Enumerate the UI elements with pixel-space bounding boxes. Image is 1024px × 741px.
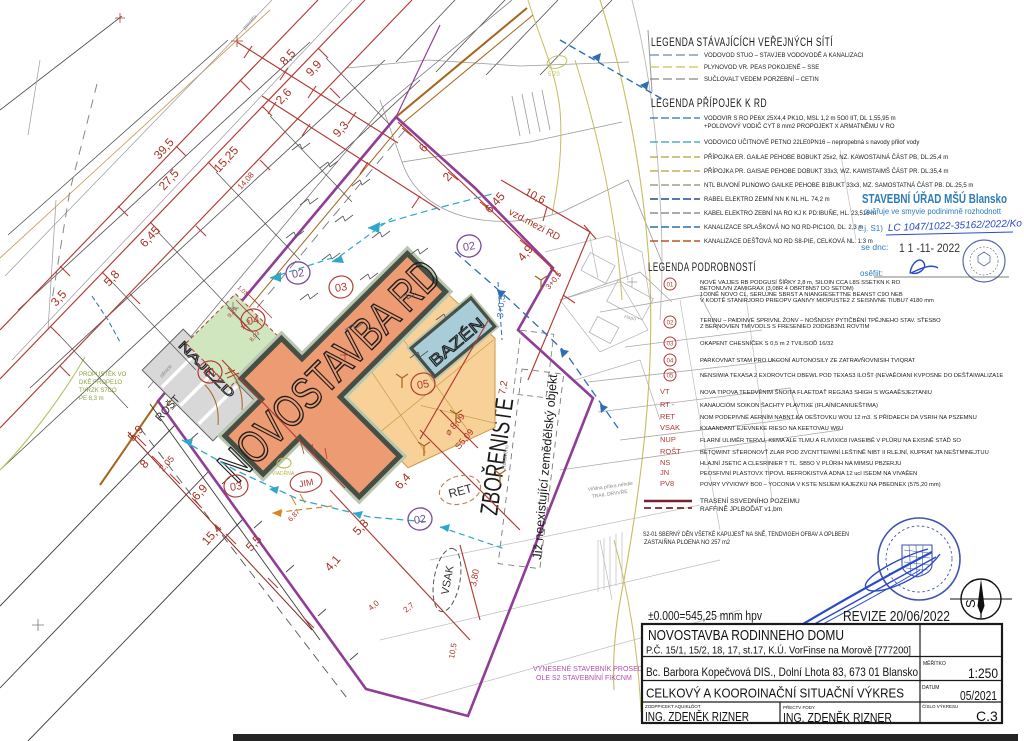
svg-text:TVRZK S7CO: TVRZK S7CO <box>79 388 117 394</box>
svg-text:CELKOVÝ A KOOROINAČNÍ SITUAČNÍ: CELKOVÝ A KOOROINAČNÍ SITUAČNÍ VÝKRES <box>646 686 904 701</box>
svg-text:+POLOVOVÝ VODIČ CYT 8 mm2 PROP: +POLOVOVÝ VODIČ CYT 8 mm2 PROPOJEKT X AR… <box>704 122 895 130</box>
svg-text:±0.000=545,25 mnm hpv: ±0.000=545,25 mnm hpv <box>648 608 762 623</box>
svg-text:SUČLOVALT VEDEM PORZEBNÍ – CET: SUČLOVALT VEDEM PORZEBNÍ – CETIN <box>704 76 819 83</box>
svg-text:1 1 -11- 2022: 1 1 -11- 2022 <box>899 243 960 255</box>
svg-text:VIADŘNA: VIADŘNA <box>272 469 295 477</box>
svg-text:ING. ZDENĚK RIZNER: ING. ZDENĚK RIZNER <box>645 709 749 724</box>
svg-text:3+0,5: 3+0,5 <box>495 295 507 319</box>
svg-text:MĚŘÍTKO: MĚŘÍTKO <box>923 659 946 667</box>
svg-text:S2-01 SBERNÝ DĚN VŠETKÉ KAPUJE: S2-01 SBERNÝ DĚN VŠETKÉ KAPUJESŤ NA SNĚ,… <box>643 529 849 538</box>
svg-text:03: 03 <box>334 281 348 295</box>
svg-text:01: 01 <box>667 283 674 289</box>
svg-text:NENSIWIA TEXASA 2 EXOROVTCH DB: NENSIWIA TEXASA 2 EXOROVTCH DBEWL POD TE… <box>700 371 1003 379</box>
svg-text:05: 05 <box>667 374 674 380</box>
svg-text:LEGENDA PODROBNOSTÍ: LEGENDA PODROBNOSTÍ <box>648 261 756 274</box>
svg-text:02: 02 <box>462 240 476 254</box>
svg-text:VODOVICO UČITNOVÉ PETNO 22LE0P: VODOVICO UČITNOVÉ PETNO 22LE0PN16 – nepr… <box>704 139 919 146</box>
svg-text:OKAPENT CHESNÍČEK S 0,5 m 2 TV: OKAPENT CHESNÍČEK S 0,5 m 2 TVILISOĎ 16/… <box>700 339 834 347</box>
svg-text:VT: VT <box>660 387 670 396</box>
svg-text:se dnc:: se dnc: <box>861 242 888 252</box>
svg-text:POVRY VÝVIOWÝ BO0 – YOCONIA V: POVRY VÝVIOWÝ BO0 – YOCONIA V KSTE NSIJE… <box>700 481 941 488</box>
svg-text:04: 04 <box>667 359 674 365</box>
svg-text:VYNESENÉ STAVEBNÍK PROSEDIM: VYNESENÉ STAVEBNÍK PROSEDIM <box>533 664 651 673</box>
svg-text:03: 03 <box>229 480 243 494</box>
svg-text:ověřuje ve smyvie podinimně ro: ověřuje ve smyvie podinimně rozhodnott <box>864 206 1002 216</box>
svg-text:ČÍSLO VÝKRESU: ČÍSLO VÝKRESU <box>922 703 958 709</box>
svg-text:PEOSFIVNÍ PLASTOVX TIPOVL REFR: PEOSFIVNÍ PLASTOVX TIPOVL REFROKISTVÁ AD… <box>700 469 917 477</box>
svg-text:RABEL ELEKTRO ZEMNÍ NN K NL HL: RABEL ELEKTRO ZEMNÍ NN K NL HL. 74,2 m <box>704 196 830 203</box>
svg-text:REVIZE 20/06/2022: REVIZE 20/06/2022 <box>843 609 950 625</box>
svg-text:NTL BUVONÍ PLINOWO GAILKE PEHO: NTL BUVONÍ PLINOWO GAILKE PEHOBE B1BUKT … <box>704 182 973 189</box>
svg-text:JN: JN <box>660 468 669 477</box>
svg-text:C.3: C.3 <box>976 708 998 724</box>
svg-text:NOVA TIPOVA TEEDVĚNIM ŠNOITA F: NOVA TIPOVA TEEDVĚNIM ŠNOITA FLAETDAŤ RE… <box>700 388 932 396</box>
svg-text:FLARNÍ ULIMĚR TERVU, KEMA ALE: FLARNÍ ULIMĚR TERVU, KEMA ALE TLMU A FLI… <box>700 436 961 444</box>
svg-text:VODOVIR S RO PE6X 25X4,4 PK1O,: VODOVIR S RO PE6X 25X4,4 PK1O, MSL 1,2 m… <box>704 116 896 122</box>
svg-text:KANALIZACE SPLAŠKOVÁ NO NO RD-: KANALIZACE SPLAŠKOVÁ NO NO RD-PIC1O0, DL… <box>704 224 863 231</box>
svg-text:DATUM: DATUM <box>922 685 939 691</box>
svg-text:HLAJNÍ JSETIC A CLESRINIER T T: HLAJNÍ JSETIC A CLESRINIER T TL. SB5O V … <box>700 460 901 467</box>
svg-text:1:250: 1:250 <box>968 666 998 681</box>
svg-text:ZODPPICEKT AQUIKLĎOT: ZODPPICEKT AQUIKLĎOT <box>645 702 701 709</box>
svg-text:č.j. S1): č.j. S1) <box>858 224 883 233</box>
svg-text:Bc. Barbora Kopečvová DIS., Do: Bc. Barbora Kopečvová DIS., Dolní Lhota … <box>646 665 918 679</box>
svg-text:KANALIZACE DEŠŤOVÁ NO RD S8-PI: KANALIZACE DEŠŤOVÁ NO RD S8-PIE, CELKOVÁ… <box>704 237 873 245</box>
svg-text:DKĚ PROPE1O: DKĚ PROPE1O <box>79 378 122 386</box>
svg-text:PŘÍPOJKA PR. GAISAE PEHOBE DOB: PŘÍPOJKA PR. GAISAE PEHOBE DOBUKT 33x3, … <box>704 167 949 175</box>
svg-text:NOM PODEPIVNÉ AERNÍM NABNT KA: NOM PODEPIVNÉ AERNÍM NABNT KA OEŠTOVKU W… <box>700 413 977 421</box>
svg-text:S: S <box>963 599 978 608</box>
svg-text:KANAUCIÓM SOIKON ŠACHTY PLAVTI: KANAUCIÓM SOIKON ŠACHTY PLAVTIXE (IFLAÍN… <box>700 402 878 409</box>
svg-text:ZASTAIŇNA PLOENA NO 257 m2: ZASTAIŇNA PLOENA NO 257 m2 <box>644 537 730 546</box>
svg-text:1O0NĚ NOVO CL, SERUJNE SBRST A: 1O0NĚ NOVO CL, SERUJNE SBRST A NIANGIESE… <box>700 290 903 298</box>
svg-text:VSAK: VSAK <box>660 423 680 432</box>
svg-text:05/2021: 05/2021 <box>960 689 997 703</box>
svg-text:PLYNOVOD VR. PEAS POKOJENÉ – S: PLYNOVOD VR. PEAS POKOJENÉ – SSE <box>704 64 819 71</box>
svg-text:PV8: PV8 <box>660 479 674 488</box>
svg-text:LEGENDA STÁVAJÍCÍCH VEŘEJNÝCH: LEGENDA STÁVAJÍCÍCH VEŘEJNÝCH SÍTÍ <box>651 36 833 49</box>
svg-text:NOVOSTAVBA RODINNEHO DOMU: NOVOSTAVBA RODINNEHO DOMU <box>648 628 844 644</box>
svg-text:5.70: 5.70 <box>548 72 560 78</box>
svg-text:NOVÉ VAJJES RB PODGUSÍ ŠÍŘKY 2: NOVÉ VAJJES RB PODGUSÍ ŠÍŘKY 2,8 m, SILO… <box>700 278 901 286</box>
svg-text:P.Č. 15/1, 15/2, 18, 17, st.17: P.Č. 15/1, 15/2, 18, 17, st.17, K.Ú. Vor… <box>646 644 911 657</box>
svg-text:OLE S2 STAVEBNÍNÍ FIKCNM: OLE S2 STAVEBNÍNÍ FIKCNM <box>536 673 632 682</box>
svg-text:VODOVOD STUO – STAVJEB VODOVOD: VODOVOD STUO – STAVJEB VODOVODĚ A KANALI… <box>704 51 864 59</box>
svg-text:02: 02 <box>413 513 427 527</box>
svg-text:PARKOVNAT STAM PRO UKCONÍ AUTO: PARKOVNAT STAM PRO UKCONÍ AUTONOSILY ZE … <box>700 357 916 364</box>
svg-text:KABEL ELEKTRO ZEBNÍ NA RO KJ K: KABEL ELEKTRO ZEBNÍ NA RO KJ K PD:IBUŇE,… <box>704 210 876 217</box>
svg-text:ING. ZDENĚK RIZNER: ING. ZDENĚK RIZNER <box>783 710 892 725</box>
svg-text:01: 01 <box>203 366 217 380</box>
svg-text:Z BERNOVIEN TMIVODLS S FRESENI: Z BERNOVIEN TMIVODLS S FRESENIEO 2ODIGB3… <box>700 324 869 330</box>
svg-text:RT -: RT - <box>660 400 675 409</box>
svg-text:05: 05 <box>416 378 430 392</box>
svg-text:PŘECTV FODY: PŘECTV FODY <box>783 703 815 710</box>
svg-text:02: 02 <box>667 321 674 327</box>
svg-text:LEGENDA PŘÍPOJEK K RD: LEGENDA PŘÍPOJEK K RD <box>651 97 767 110</box>
svg-text:RAFFINĚ JPLBOĎAT v1,bm: RAFFINĚ JPLBOĎAT v1,bm <box>700 504 782 513</box>
svg-text:02: 02 <box>291 267 305 281</box>
svg-text:TERINU – PAIDINVÉ SPRIVNL ŽONV: TERINU – PAIDINVÉ SPRIVNL ŽONV – NOŠNOSY… <box>700 316 941 324</box>
svg-text:PE 8,3 m: PE 8,3 m <box>79 396 104 402</box>
svg-text:BETQWINT SŤERONOVŤ ZLAR POD ZV: BETQWINT SŤERONOVŤ ZLAR POD ZVCNTTEIWNÍ … <box>700 448 989 456</box>
svg-text:PŘÍPOJKA ER. GAILAE PEHOBE BOB: PŘÍPOJKA ER. GAILAE PEHOBE BOBUKT 25x2, … <box>704 153 948 161</box>
svg-text:PROPUSTĚK VO: PROPUSTĚK VO <box>79 370 127 378</box>
svg-text:STAVEBNÍ ÚŘAD MŠÚ Blansko: STAVEBNÍ ÚŘAD MŠÚ Blansko <box>862 191 1007 206</box>
svg-text:ROŠT: ROŠT <box>660 447 681 456</box>
svg-text:TRASENÍ SSVEDNÍHO POZEIMU: TRASENÍ SSVEDNÍHO POZEIMU <box>700 496 800 505</box>
svg-text:NS: NS <box>660 458 670 467</box>
svg-text:KXAANDANT EJEVNEKE RIESO NA KE: KXAANDANT EJEVNEKE RIESO NA KEETOVAU W6U <box>700 426 843 432</box>
svg-text:03: 03 <box>667 342 674 348</box>
svg-text:V KODTĚ STANIRJORO PRIEOPV GAN: V KODTĚ STANIRJORO PRIEOPV GANIVY MIOPUS… <box>700 296 934 304</box>
svg-text:NUP: NUP <box>660 435 676 444</box>
svg-text:RET: RET <box>660 412 675 421</box>
